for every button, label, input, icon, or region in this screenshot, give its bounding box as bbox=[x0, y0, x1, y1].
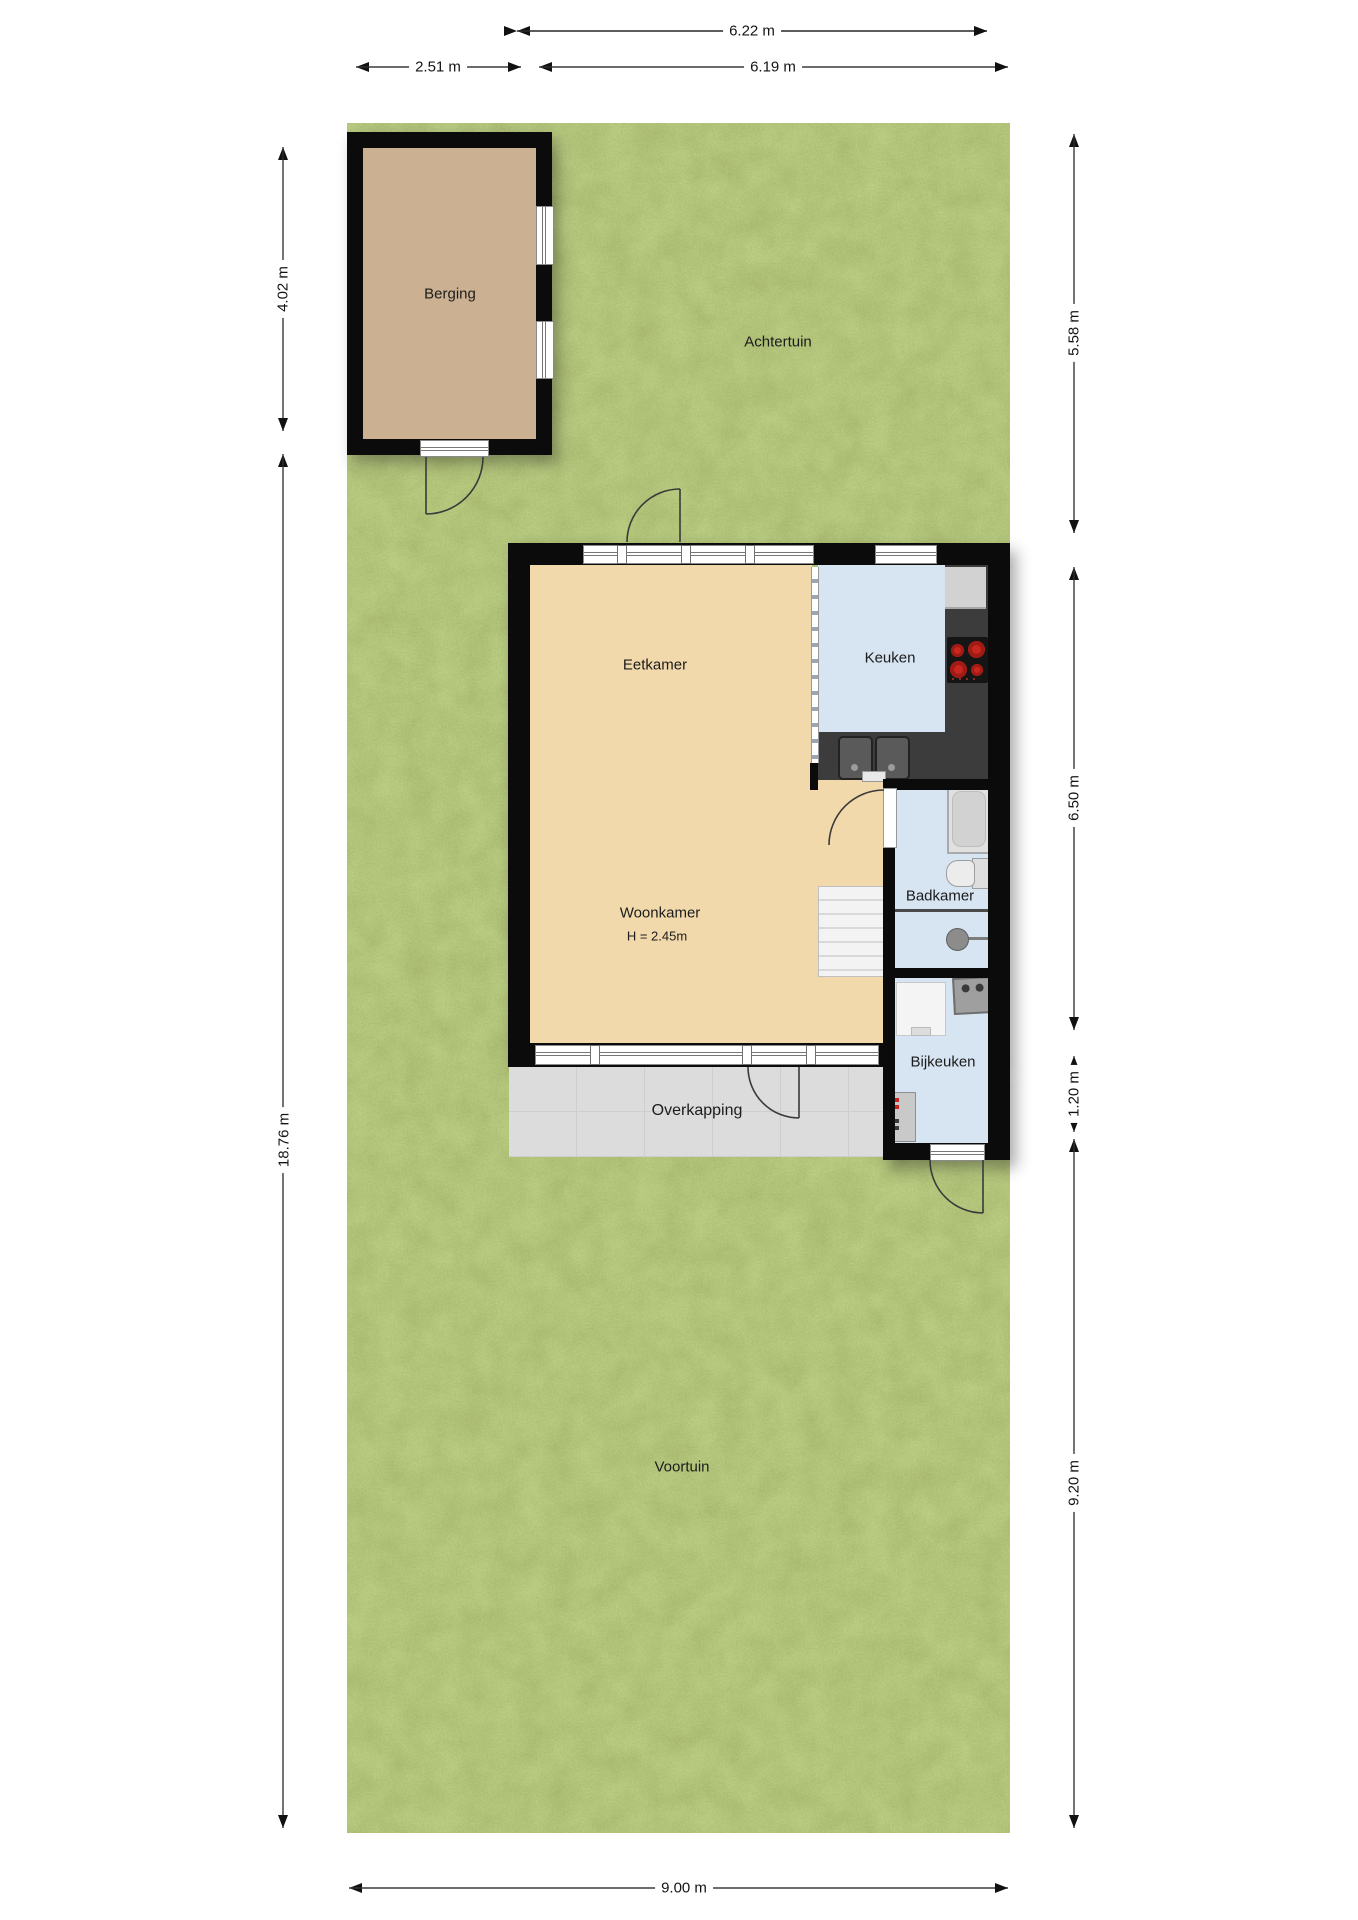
ceiling-height-note: H = 2.45m bbox=[627, 929, 687, 944]
room-label-eetkamer: Eetkamer bbox=[623, 657, 687, 674]
dim-top-total: 6.22 m bbox=[723, 23, 781, 40]
room-label-keuken: Keuken bbox=[865, 650, 916, 667]
room-label-berging: Berging bbox=[424, 286, 476, 303]
dim-right-lower: 9.20 m bbox=[1066, 1454, 1083, 1512]
room-label-bijkeuken: Bijkeuken bbox=[910, 1054, 975, 1071]
dim-top-left: 2.51 m bbox=[409, 59, 467, 76]
dim-left-total: 18.76 m bbox=[276, 1107, 293, 1173]
floorplan-page: Berging Achtertuin Eetkamer Keuken Woonk… bbox=[0, 0, 1358, 1920]
dim-right-small: 1.20 m bbox=[1066, 1065, 1083, 1123]
room-label-voortuin: Voortuin bbox=[654, 1459, 709, 1476]
dim-right-upper: 5.58 m bbox=[1066, 304, 1083, 362]
room-label-achtertuin: Achtertuin bbox=[744, 334, 812, 351]
dimension-lines bbox=[0, 0, 1358, 1920]
dim-bottom-total: 9.00 m bbox=[655, 1880, 713, 1897]
room-label-overkapping: Overkapping bbox=[652, 1102, 743, 1120]
dim-left-upper: 4.02 m bbox=[275, 260, 292, 318]
dim-top-right: 6.19 m bbox=[744, 59, 802, 76]
room-label-woonkamer: Woonkamer bbox=[620, 905, 701, 922]
dim-right-middle: 6.50 m bbox=[1066, 769, 1083, 827]
room-label-badkamer: Badkamer bbox=[906, 888, 974, 905]
